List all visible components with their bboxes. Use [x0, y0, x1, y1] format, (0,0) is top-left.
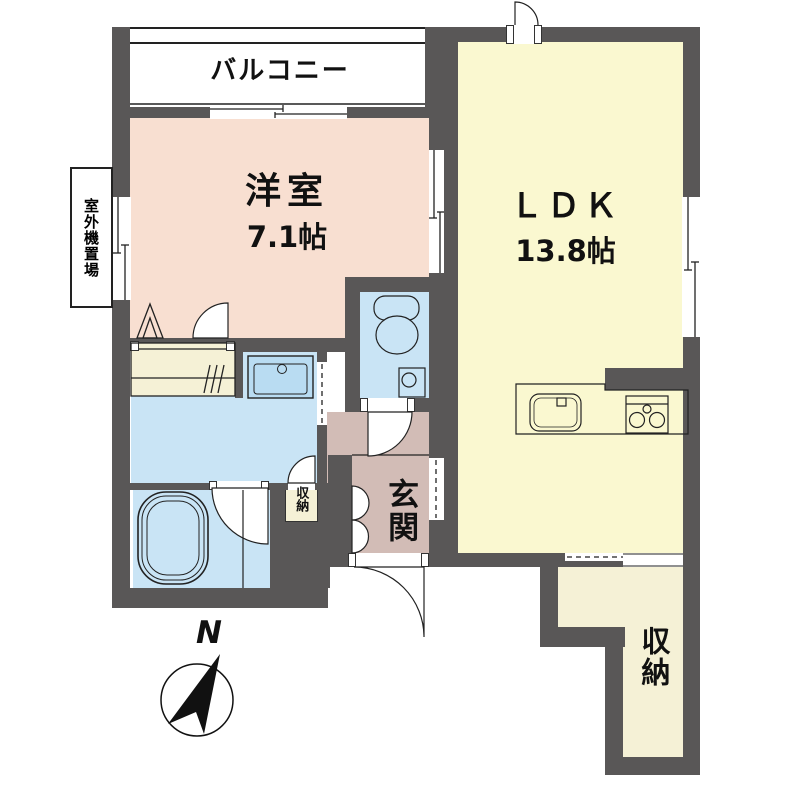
wall-left	[112, 27, 130, 608]
wall-below-hall-storage	[285, 522, 330, 588]
wall-wash-hall-upper	[317, 343, 327, 362]
storage-open-passage	[623, 553, 683, 567]
ldk-size: 13.8帖	[478, 236, 653, 268]
wall-wash-hall-lower	[317, 425, 327, 483]
compass-north-label: N	[196, 616, 222, 650]
washroom-hall-slide-opening	[317, 362, 327, 425]
doorpost	[226, 341, 235, 351]
main-storage-label: 収納	[637, 626, 669, 688]
window-west-left	[111, 197, 131, 300]
bedroom-closet-floor	[131, 343, 235, 396]
compass-icon	[161, 654, 233, 736]
wall-bathroom-right	[270, 483, 285, 588]
wall-top	[444, 27, 700, 42]
balcony-label: バルコニー	[155, 57, 405, 86]
toilet-floor	[360, 292, 429, 398]
wall-bottom-left	[112, 588, 328, 608]
outdoor-unit-box: 室外機置場	[70, 167, 113, 308]
wall-storage-left-upper	[540, 553, 558, 630]
bathroom-floor	[133, 490, 270, 588]
wall-storage-step	[540, 627, 625, 647]
washroom-vanity-floor	[243, 352, 317, 398]
doorpost	[130, 341, 139, 351]
doorpost	[506, 25, 514, 44]
storage-dashed-opening	[565, 553, 623, 561]
western-room-size: 7.1帖	[207, 222, 367, 254]
entrance-label: 玄関	[383, 478, 417, 544]
hall-storage-label: 収納	[293, 486, 307, 512]
ldk-label: ＬＤＫ	[478, 188, 653, 224]
wall-westroom-bottom	[235, 338, 352, 352]
wall-closet-divider	[235, 343, 243, 398]
window-ldk-right	[682, 197, 700, 337]
wall-toilet-left	[345, 277, 360, 412]
washroom-floor	[131, 396, 317, 483]
wall-right	[683, 27, 700, 775]
wall-entrance-left	[328, 455, 352, 567]
wall-storage-left-lower	[605, 647, 623, 775]
outdoor-unit-label: 室外機置場	[81, 198, 102, 278]
doorpost	[360, 398, 368, 412]
western-room-label: 洋室	[207, 172, 367, 212]
front-door-opening	[352, 553, 427, 567]
doorpost	[407, 398, 415, 412]
window-west-top	[210, 104, 347, 119]
wall-toilet-top	[352, 277, 444, 292]
wall-storage-stub	[558, 561, 625, 567]
hall-ldk-opening	[429, 458, 444, 520]
wall-room-divider-b	[444, 42, 458, 553]
wall-kitchen-beam	[605, 368, 683, 390]
ldk-floor	[458, 42, 683, 553]
doorpost	[421, 553, 429, 567]
slide-door-westroom-ldk	[429, 150, 444, 273]
floor-plan: 室外機置場	[0, 0, 800, 800]
doorpost	[261, 481, 269, 490]
wall-storage-bottom	[605, 757, 700, 775]
doorpost	[534, 25, 542, 44]
doorpost	[348, 553, 356, 567]
doorpost	[209, 481, 217, 490]
